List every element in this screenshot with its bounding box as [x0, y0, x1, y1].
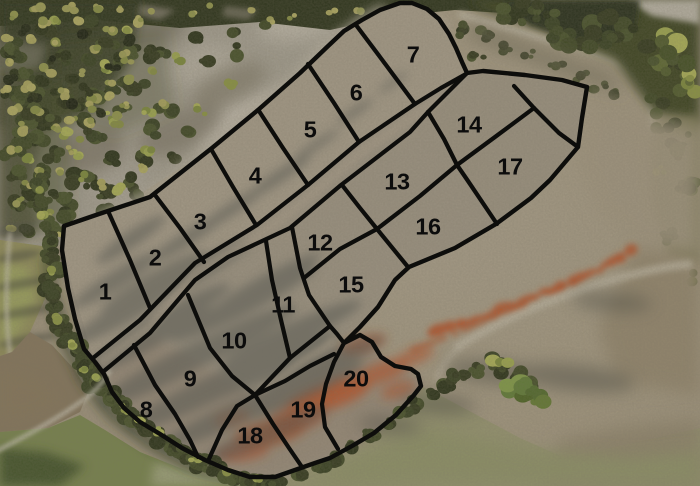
svg-text:8: 8 [140, 397, 153, 423]
svg-text:2: 2 [149, 245, 162, 271]
svg-text:13: 13 [384, 169, 410, 195]
svg-text:17: 17 [497, 154, 523, 180]
svg-text:10: 10 [221, 328, 247, 354]
svg-text:14: 14 [456, 112, 482, 138]
svg-text:9: 9 [184, 366, 197, 392]
svg-text:19: 19 [290, 397, 316, 423]
svg-text:5: 5 [304, 117, 317, 143]
svg-text:16: 16 [415, 214, 441, 240]
svg-text:15: 15 [338, 272, 364, 298]
svg-text:1: 1 [99, 279, 112, 305]
svg-text:12: 12 [307, 230, 333, 256]
svg-text:4: 4 [249, 163, 262, 189]
svg-text:11: 11 [271, 292, 295, 318]
svg-text:20: 20 [343, 366, 369, 392]
svg-text:18: 18 [237, 423, 263, 449]
svg-text:7: 7 [407, 42, 420, 68]
svg-text:6: 6 [350, 80, 363, 106]
svg-text:3: 3 [194, 209, 207, 235]
